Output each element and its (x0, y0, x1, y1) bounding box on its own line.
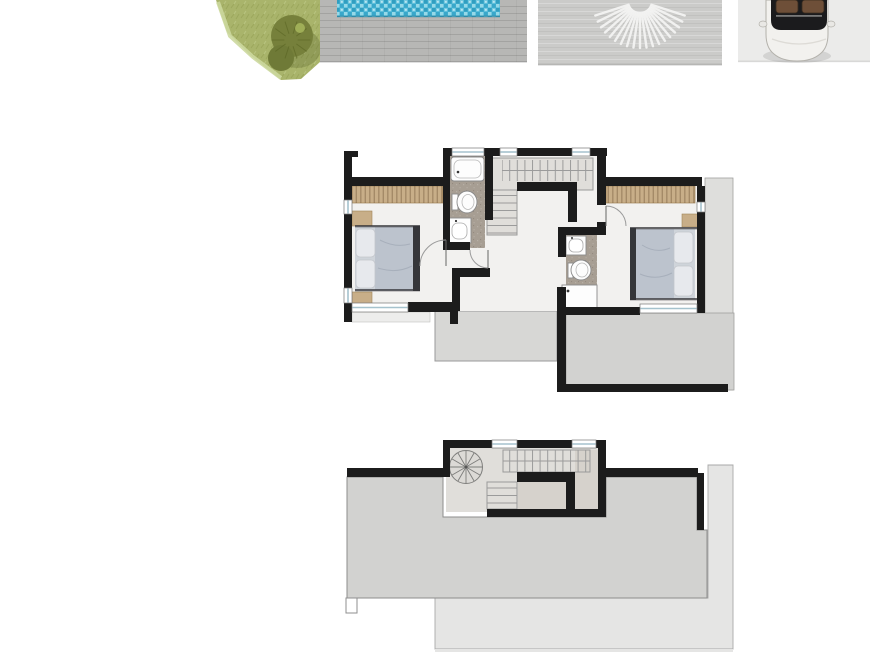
window (572, 148, 590, 156)
wardrobe-1-hatch (352, 186, 443, 203)
washbasin-1-tap (455, 220, 457, 222)
window (640, 304, 697, 313)
washbasin-2-tap (571, 237, 573, 239)
bed-2-frame-top (630, 227, 697, 229)
bed-1-duvet (375, 227, 414, 290)
pool-edge (337, 16, 500, 18)
car-seat-left (776, 0, 798, 13)
washbasin-2-bowl (569, 239, 583, 252)
wall (517, 182, 577, 191)
double-bed-2 (630, 227, 697, 300)
wall (344, 151, 352, 200)
tree-highlight (295, 23, 305, 33)
bed-1-frame-bottom (355, 289, 420, 291)
stair-landing-1 (518, 482, 566, 509)
wall (558, 235, 566, 257)
bathtub (451, 157, 484, 181)
tree-canopy-lower (268, 45, 294, 71)
roof-plan (346, 440, 733, 652)
wall (452, 277, 460, 311)
wall (443, 440, 492, 448)
wall (568, 191, 577, 222)
car-seat-right (802, 0, 824, 13)
car-mirror-left (759, 21, 767, 27)
roof-step (346, 598, 357, 613)
wall (557, 287, 566, 392)
wall (606, 177, 702, 186)
patio-shadow (538, 64, 722, 66)
wardrobe-2-hatch (606, 186, 695, 203)
wall (443, 242, 470, 250)
wall (697, 186, 705, 202)
car-dashboard-line (776, 15, 822, 17)
nightstand-1a (352, 211, 372, 226)
bed-1-frame-top (355, 225, 420, 227)
wall (344, 303, 352, 322)
wall (487, 509, 606, 517)
wall (558, 227, 603, 235)
wall (605, 468, 698, 477)
spiral-center (465, 466, 468, 469)
bed-2-frame-bottom (630, 298, 697, 300)
wall (697, 473, 704, 530)
window (572, 440, 596, 448)
window (452, 148, 484, 156)
window (344, 288, 352, 303)
bed-2-pillow-top (674, 232, 693, 263)
wall (452, 268, 490, 277)
wall (484, 148, 500, 156)
wall (697, 212, 705, 303)
wall (517, 148, 572, 156)
bed-2-frame (630, 228, 636, 300)
wall (566, 482, 575, 510)
bathtub-drain (457, 171, 460, 174)
wall (443, 186, 450, 240)
shower-drain (567, 290, 570, 293)
bed-1-pillow-bottom (356, 260, 375, 288)
deck-shadow (320, 61, 527, 63)
site-plan (216, 0, 870, 80)
roof-stair-treads-left (487, 482, 517, 509)
wall (443, 148, 452, 156)
wall (344, 214, 352, 288)
shower-tray (562, 285, 597, 309)
wall (485, 156, 493, 220)
window (697, 202, 705, 212)
nightstand-2 (682, 214, 699, 227)
floorplan-sheet (0, 0, 870, 652)
window (500, 148, 517, 156)
car-top-view (759, 0, 835, 63)
bed-1-pillow-top (356, 229, 375, 257)
wall (347, 468, 450, 477)
wall (517, 472, 575, 482)
pool-tiles (337, 0, 500, 17)
bed-2-duvet (636, 229, 674, 298)
wall (598, 440, 606, 513)
upper-floor-plan (344, 148, 734, 392)
wall (597, 148, 606, 205)
car-mirror-right (827, 21, 835, 27)
wall (348, 177, 443, 186)
bed-2-pillow-bottom (674, 266, 693, 296)
double-bed-1 (355, 225, 420, 291)
wall (558, 384, 728, 392)
spiral-staircase (450, 451, 483, 484)
wall (517, 440, 573, 448)
washbasin-1-bowl (452, 223, 467, 239)
window-ledge (352, 312, 430, 322)
wall (697, 303, 705, 313)
terrace-large (566, 313, 734, 390)
bed-1-frame (413, 226, 420, 291)
swimming-pool (337, 0, 500, 17)
window (344, 200, 352, 214)
wall (558, 307, 640, 315)
window (492, 440, 517, 448)
window (352, 303, 408, 312)
patio (538, 0, 722, 66)
